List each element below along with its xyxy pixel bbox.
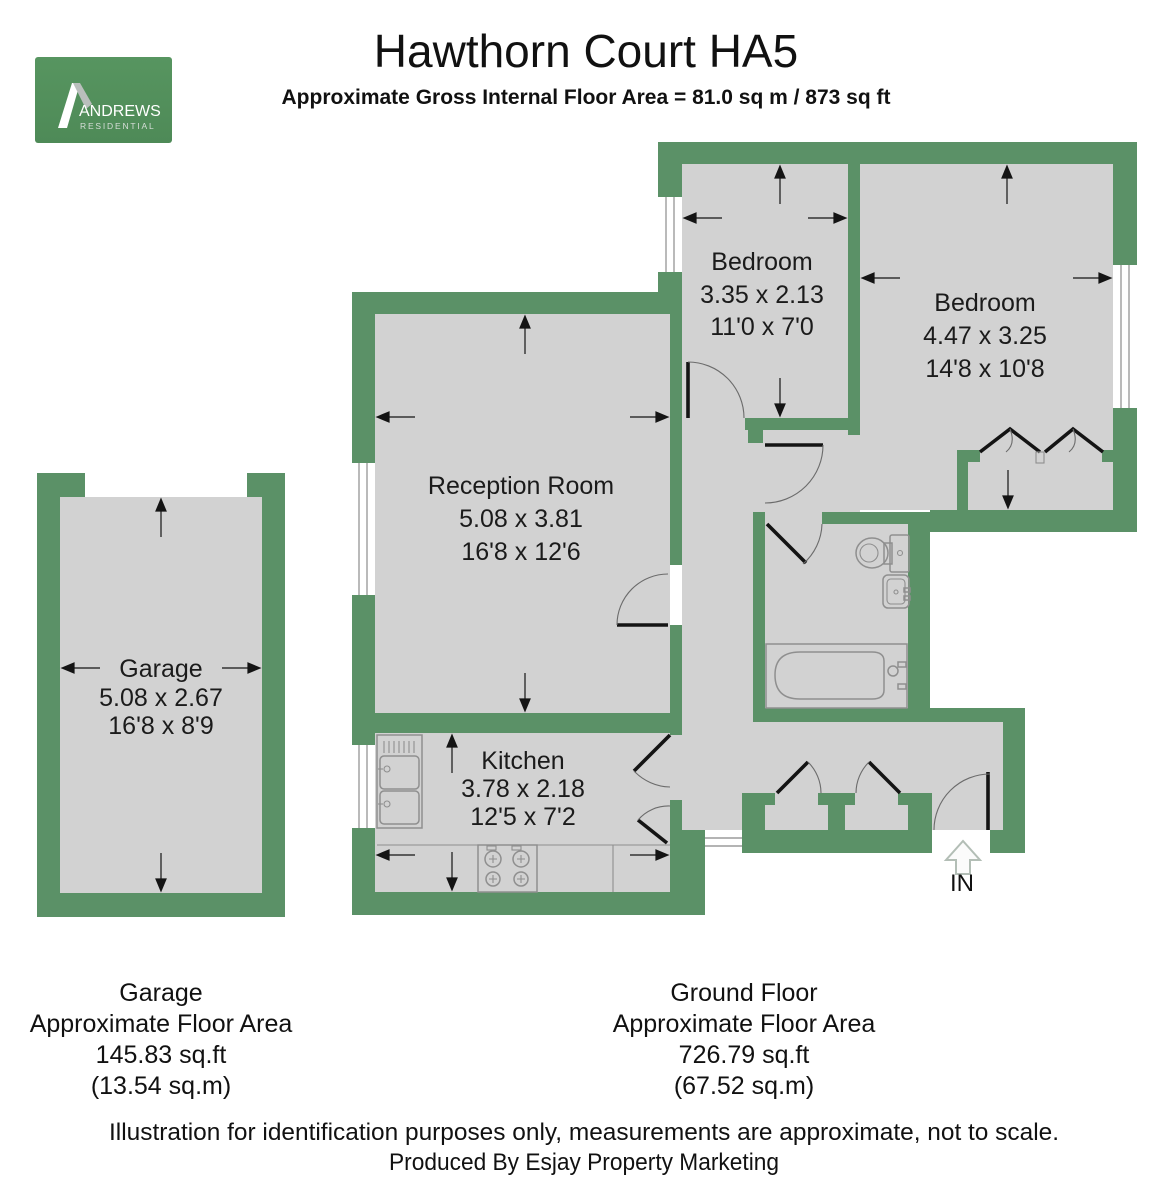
page-title: Hawthorn Court HA5 (374, 25, 798, 77)
passage-floor (748, 430, 860, 512)
window-bedroom1 (658, 197, 682, 272)
svg-text:11'0 x 7'0: 11'0 x 7'0 (710, 313, 814, 341)
svg-text:4.47 x 3.25: 4.47 x 3.25 (923, 322, 1047, 350)
svg-text:Bedroom: Bedroom (711, 248, 812, 276)
window-kitchen (352, 745, 375, 828)
svg-text:(13.54 sq.m): (13.54 sq.m) (91, 1072, 231, 1100)
footer: Illustration for identification purposes… (109, 1119, 1059, 1176)
room-label-bedroom1: Bedroom 3.35 x 2.13 11'0 x 7'0 (700, 248, 824, 341)
window-reception (352, 463, 375, 595)
svg-text:Kitchen: Kitchen (481, 747, 564, 775)
svg-text:5.08 x 2.67: 5.08 x 2.67 (99, 684, 223, 712)
entrance-label: IN (950, 870, 974, 897)
svg-text:16'8 x 8'9: 16'8 x 8'9 (108, 712, 213, 740)
svg-text:Approximate Floor Area: Approximate Floor Area (30, 1010, 293, 1038)
page-subtitle: Approximate Gross Internal Floor Area = … (282, 86, 891, 109)
footer-disclaimer: Illustration for identification purposes… (109, 1119, 1059, 1146)
floor-plan: Bedroom 3.35 x 2.13 11'0 x 7'0 Bedroom 4… (37, 142, 1137, 917)
svg-text:Bedroom: Bedroom (934, 289, 1035, 317)
svg-text:Garage: Garage (119, 979, 202, 1007)
svg-text:(67.52 sq.m): (67.52 sq.m) (674, 1072, 814, 1100)
svg-text:16'8 x 12'6: 16'8 x 12'6 (461, 538, 580, 566)
room-label-bedroom2: Bedroom 4.47 x 3.25 14'8 x 10'8 (923, 289, 1047, 383)
logo-tagline-text: RESIDENTIAL (80, 121, 156, 131)
window-bedroom2 (1113, 265, 1137, 408)
caption-ground-floor: Ground Floor Approximate Floor Area 726.… (613, 979, 876, 1100)
svg-text:14'8 x 10'8: 14'8 x 10'8 (925, 355, 1044, 383)
window-corridor (705, 830, 742, 853)
svg-text:3.78 x 2.18: 3.78 x 2.18 (461, 775, 585, 803)
garage-door-opening (85, 473, 247, 497)
entrance-marker: IN (946, 841, 980, 897)
svg-text:3.35 x 2.13: 3.35 x 2.13 (700, 281, 824, 309)
floorplan-page: Hawthorn Court HA5 Approximate Gross Int… (0, 0, 1169, 1200)
svg-text:Ground Floor: Ground Floor (670, 979, 817, 1007)
svg-text:Reception Room: Reception Room (428, 472, 614, 500)
caption-garage: Garage Approximate Floor Area 145.83 sq.… (30, 979, 293, 1100)
footer-credit: Produced By Esjay Property Marketing (389, 1149, 779, 1176)
svg-text:726.79 sq.ft: 726.79 sq.ft (679, 1041, 810, 1069)
sink-drainer (384, 741, 414, 753)
header: Hawthorn Court HA5 Approximate Gross Int… (282, 25, 891, 109)
svg-text:145.83 sq.ft: 145.83 sq.ft (96, 1041, 227, 1069)
svg-text:Garage: Garage (119, 655, 202, 683)
svg-text:5.08 x 3.81: 5.08 x 3.81 (459, 505, 583, 533)
svg-text:12'5 x 7'2: 12'5 x 7'2 (470, 803, 575, 831)
brand-logo: ANDREWS RESIDENTIAL (35, 57, 172, 143)
svg-text:Approximate Floor Area: Approximate Floor Area (613, 1010, 876, 1038)
logo-brand-text: ANDREWS (79, 103, 161, 120)
